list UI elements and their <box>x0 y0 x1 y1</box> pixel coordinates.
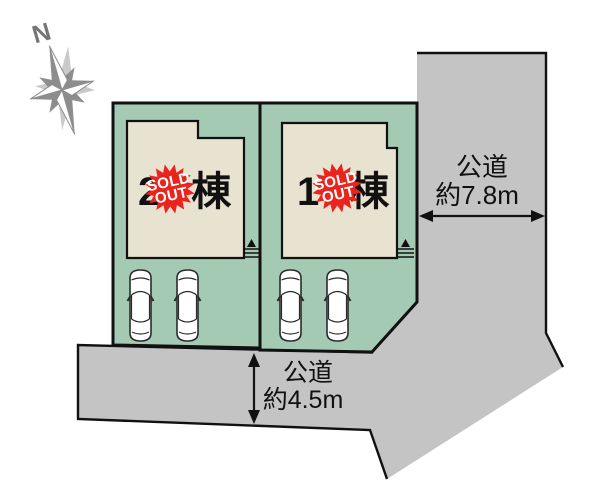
compass-rose: N <box>4 6 120 148</box>
north-label: N <box>29 17 54 49</box>
site-plan-drawing: 2棟 1棟 SOLD OUT SOLD OUT 公道 約7.8m 公道 約4.5… <box>0 0 600 499</box>
car-icon <box>278 270 304 341</box>
road-east-width: 約7.8m <box>435 180 519 210</box>
road-south-width: 約4.5m <box>263 386 344 414</box>
road-east-name: 公道 <box>456 152 508 182</box>
car-icon <box>175 270 201 341</box>
site-plan: 2棟 1棟 SOLD OUT SOLD OUT 公道 約7.8m 公道 約4.5… <box>0 0 600 499</box>
road-south-name: 公道 <box>283 359 333 387</box>
car-icon <box>128 270 154 341</box>
car-icon <box>325 270 351 341</box>
